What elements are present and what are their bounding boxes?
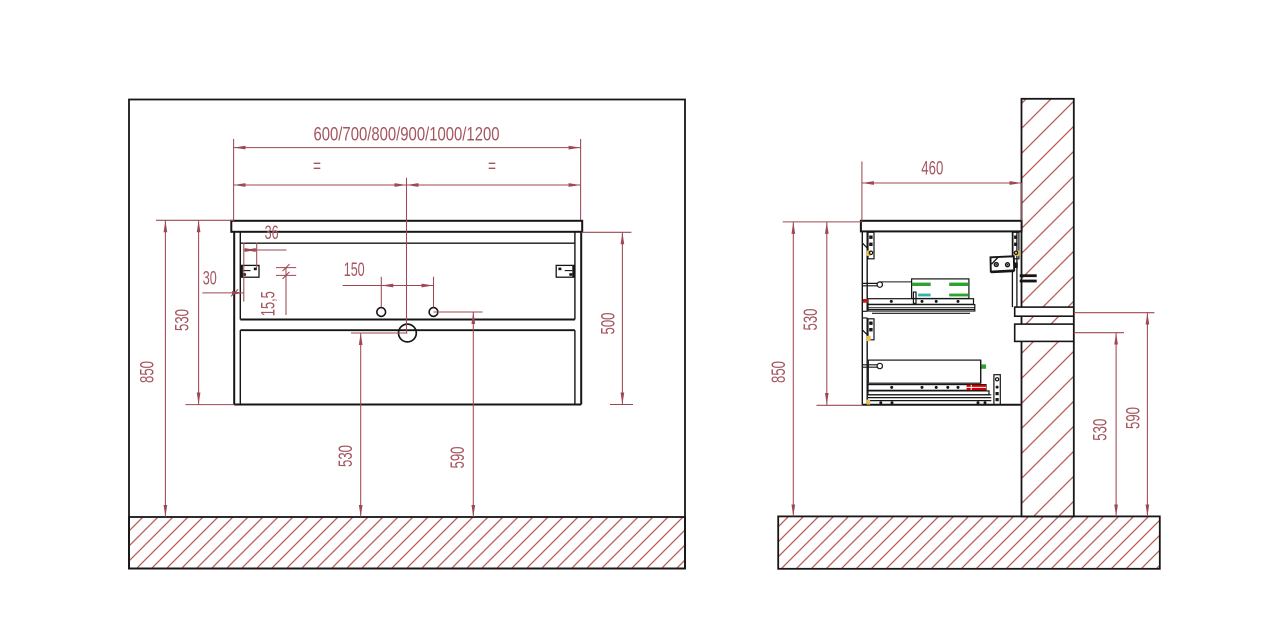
svg-text:500: 500	[597, 312, 619, 334]
svg-text:600/700/800/900/1000/1200: 600/700/800/900/1000/1200	[314, 124, 500, 146]
svg-text:15,5: 15,5	[258, 291, 280, 316]
svg-text:850: 850	[768, 361, 790, 383]
svg-text:30: 30	[203, 267, 217, 289]
svg-text:530: 530	[335, 445, 357, 467]
svg-text:460: 460	[921, 158, 943, 180]
svg-text:530: 530	[800, 308, 822, 330]
svg-text:590: 590	[447, 446, 469, 468]
svg-text:850: 850	[137, 361, 159, 383]
svg-text:590: 590	[1122, 407, 1144, 429]
svg-text:530: 530	[1090, 419, 1112, 441]
svg-text:150: 150	[344, 259, 365, 281]
svg-text:=: =	[488, 156, 496, 178]
svg-text:=: =	[313, 156, 321, 178]
svg-text:36: 36	[265, 222, 279, 244]
svg-text:530: 530	[172, 309, 194, 331]
